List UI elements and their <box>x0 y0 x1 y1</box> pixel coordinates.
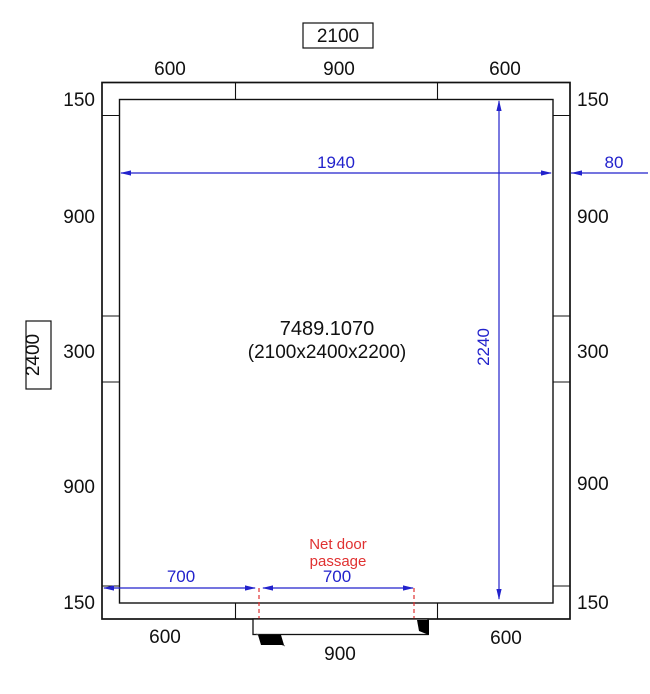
bottom-dim-600-right: 600 <box>490 628 522 649</box>
room-label: 7489.1070 (2100x2400x2200) <box>248 318 406 363</box>
arrow-right-icon <box>403 585 414 590</box>
left-dim-150-top: 150 <box>63 90 95 111</box>
overall-height-label: 2400 <box>23 334 44 376</box>
top-dim-600-right: 600 <box>489 59 521 80</box>
door-note: Net door passage <box>309 536 367 570</box>
left-dim-900-bottom: 900 <box>63 477 95 498</box>
door-note-line2: passage <box>310 553 367 570</box>
arrow-left-icon <box>571 170 582 175</box>
top-panel-dimensions: 600 900 600 <box>154 59 521 80</box>
door-offset-dimension: 700 <box>103 567 256 591</box>
arrow-up-icon <box>496 100 501 111</box>
arrow-left-icon <box>120 170 131 175</box>
right-dim-150-bottom: 150 <box>577 593 609 614</box>
left-dim-900-top: 900 <box>63 207 95 228</box>
top-dim-600-left: 600 <box>154 59 186 80</box>
left-panel-dimensions: 150 900 300 900 150 <box>63 90 95 614</box>
bottom-dim-900: 900 <box>324 644 356 665</box>
door-handle <box>258 635 284 645</box>
door-passage-dimension: 700 <box>262 567 414 591</box>
bottom-dim-600-left: 600 <box>149 627 181 648</box>
arrow-right-icon <box>541 170 552 175</box>
right-dim-900-bottom: 900 <box>577 474 609 495</box>
inner-height-dimension: 2240 <box>474 100 502 600</box>
right-dim-900-top: 900 <box>577 207 609 228</box>
right-dim-300: 300 <box>577 342 609 363</box>
wall-thickness-value: 80 <box>605 153 624 172</box>
arrow-right-icon <box>245 585 256 590</box>
door <box>253 588 429 646</box>
inner-width-dimension: 1940 <box>120 153 552 176</box>
overall-width-label: 2100 <box>317 26 359 47</box>
room-code: 7489.1070 <box>280 318 375 340</box>
top-dim-900: 900 <box>323 59 355 80</box>
left-dim-300: 300 <box>63 342 95 363</box>
wall-thickness-dimension: 80 <box>571 153 648 176</box>
door-offset-value: 700 <box>167 567 195 586</box>
arrow-down-icon <box>496 589 501 600</box>
room-size: (2100x2400x2200) <box>248 342 406 363</box>
left-dim-150-bottom: 150 <box>63 593 95 614</box>
right-dim-150-top: 150 <box>577 90 609 111</box>
floor-plan-drawing: 2100 2400 600 900 600 150 900 300 900 15… <box>0 0 650 694</box>
inner-width-value: 1940 <box>317 153 355 172</box>
inner-height-value: 2240 <box>474 328 493 366</box>
door-leaf <box>253 619 428 635</box>
door-note-line1: Net door <box>309 536 367 553</box>
arrow-left-icon <box>262 585 273 590</box>
